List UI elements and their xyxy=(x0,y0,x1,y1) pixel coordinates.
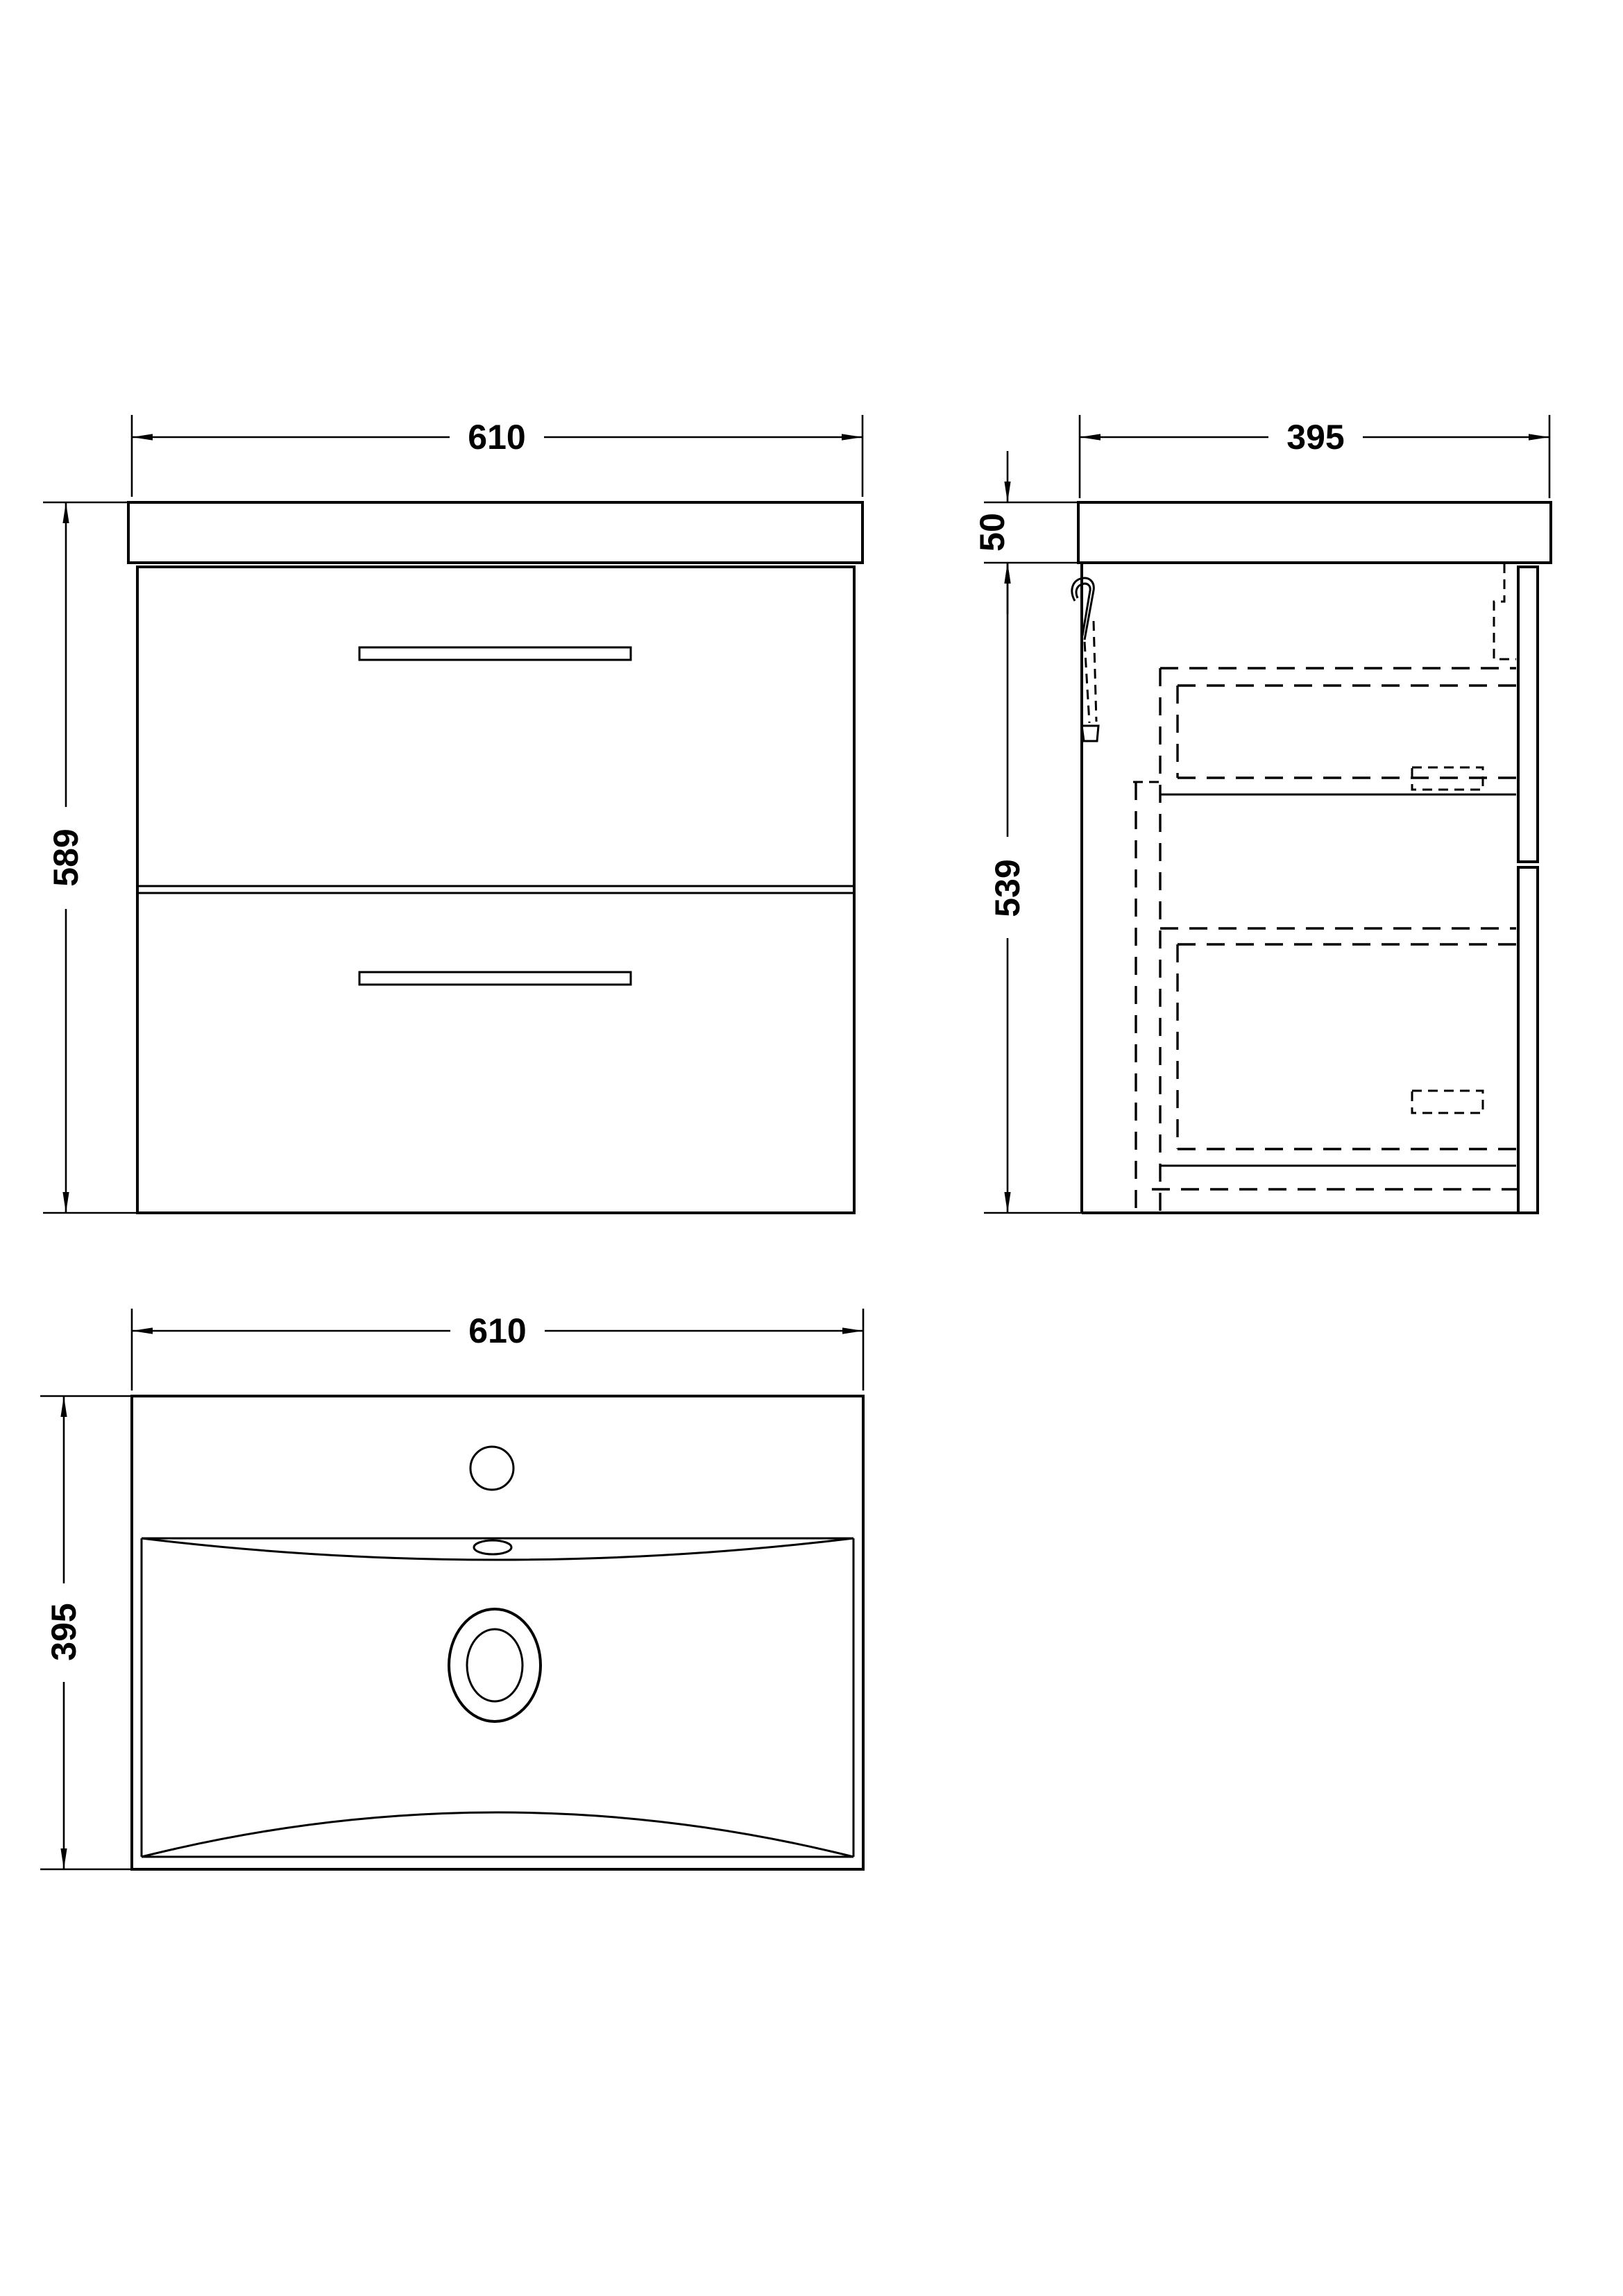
plan-basin-outer-rim xyxy=(132,1396,863,1869)
side-front-fixing-hidden xyxy=(1494,563,1516,659)
plan-width-label: 610 xyxy=(468,1311,526,1350)
side-dim-depth: 395 xyxy=(1080,415,1549,498)
side-view: 395 50 539 xyxy=(973,415,1551,1213)
front-top-drawer-handle xyxy=(359,647,631,660)
side-dim-worktop: 50 xyxy=(973,451,1078,614)
front-width-label: 610 xyxy=(468,418,525,457)
waste-outlet-inner xyxy=(467,1629,522,1701)
plan-view: 610 395 xyxy=(40,1309,863,1869)
side-worktop xyxy=(1078,502,1551,563)
plan-dim-depth: 395 xyxy=(40,1396,132,1869)
side-cabinet-label: 539 xyxy=(988,859,1027,917)
drawing-sheet: 610 589 395 xyxy=(0,0,1623,2296)
side-top-drawer-box xyxy=(1160,668,1516,794)
side-wall-bracket xyxy=(1072,578,1098,741)
side-bottom-drawer-box xyxy=(1160,928,1516,1166)
side-depth-label: 395 xyxy=(1286,418,1344,457)
tap-hole xyxy=(470,1447,513,1490)
technical-drawing: 610 589 395 xyxy=(0,0,1623,2296)
bowl-front-curve xyxy=(142,1812,853,1857)
front-dim-width: 610 xyxy=(132,415,863,497)
front-view: 610 589 xyxy=(43,415,863,1213)
front-height-label: 589 xyxy=(46,828,85,886)
overflow-slot xyxy=(474,1540,511,1554)
bracket-hidden-line xyxy=(1094,621,1096,722)
side-bottom-drawer-front xyxy=(1518,867,1538,1213)
side-worktop-label: 50 xyxy=(973,513,1012,552)
plan-depth-label: 395 xyxy=(44,1603,83,1660)
plan-basin-bowl xyxy=(142,1538,853,1857)
bracket-hidden-line xyxy=(1085,642,1089,723)
waste-outlet-outer xyxy=(449,1609,541,1721)
side-top-drawer-front xyxy=(1518,567,1538,862)
front-bottom-drawer-handle xyxy=(359,972,631,985)
front-cabinet xyxy=(137,567,854,1213)
front-dim-height: 589 xyxy=(43,502,137,1213)
front-worktop xyxy=(128,502,863,563)
bracket-foot xyxy=(1082,726,1098,741)
drawer-runner-hidden xyxy=(1412,1091,1483,1113)
plan-dim-width: 610 xyxy=(132,1309,863,1391)
bracket-hook-inner xyxy=(1076,584,1090,636)
side-dim-cabinet: 539 xyxy=(984,563,1082,1213)
